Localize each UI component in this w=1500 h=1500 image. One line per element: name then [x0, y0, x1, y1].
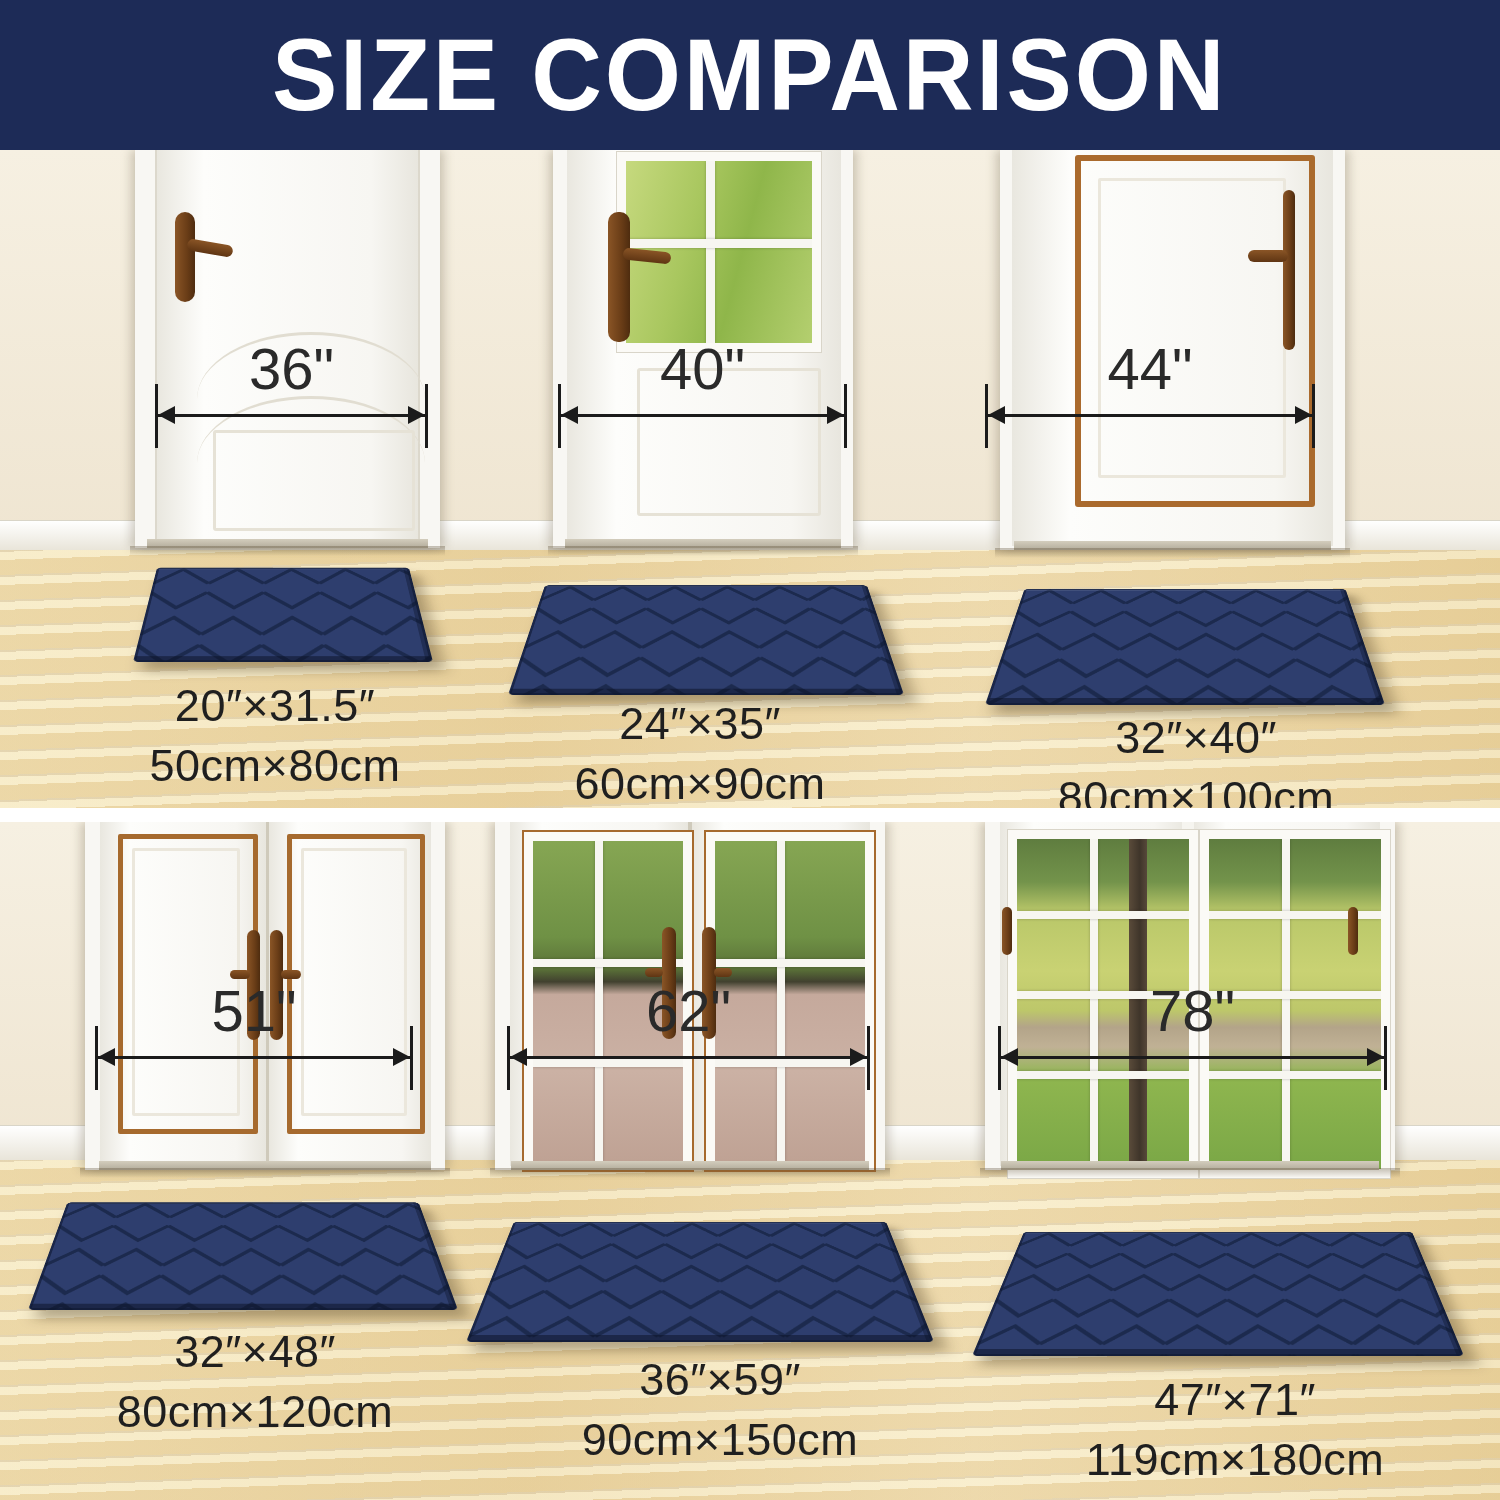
arrowhead-right-icon	[408, 406, 425, 424]
mat-size-label: 24″×35″ 60cm×90cm	[510, 694, 890, 808]
arrowhead-left-icon	[988, 406, 1005, 424]
arrowhead-left-icon	[1001, 1048, 1018, 1066]
dimension-tick	[410, 1026, 413, 1090]
mat-size-cm: 80cm×100cm	[1006, 768, 1386, 808]
window-muntin	[626, 239, 812, 248]
doormat-47x71	[972, 1232, 1464, 1356]
arrowhead-left-icon	[98, 1048, 115, 1066]
door-shadow	[995, 548, 1350, 558]
dimension-tick	[425, 384, 428, 448]
window-muntin	[533, 959, 683, 967]
door-handle-icon	[1002, 907, 1012, 955]
door-panel	[1098, 178, 1286, 478]
window-muntin	[777, 841, 785, 1161]
dimension-line	[1000, 1056, 1385, 1059]
mat-size-label: 20″×31.5″ 50cm×80cm	[85, 676, 465, 797]
doormat-24x35	[508, 585, 904, 695]
size-comparison-infographic: SIZE COMPARISON	[0, 0, 1500, 1500]
door-handle-icon	[1348, 907, 1358, 955]
doormat-20x31	[133, 568, 433, 662]
door-panel	[301, 848, 407, 1116]
arrowhead-right-icon	[393, 1048, 410, 1066]
mat-size-cm: 90cm×150cm	[530, 1410, 910, 1470]
mat-size-cm: 50cm×80cm	[85, 736, 465, 796]
mat-size-inches: 32″×48″	[65, 1322, 445, 1382]
tree-trunk	[1129, 839, 1147, 1169]
mat-size-cm: 80cm×120cm	[65, 1382, 445, 1442]
dimension-tick	[867, 1026, 870, 1090]
door-width-label: 78"	[1150, 977, 1235, 1044]
mat-size-label: 32″×48″ 80cm×120cm	[65, 1322, 445, 1443]
mat-size-inches: 20″×31.5″	[85, 676, 465, 736]
door-shadow	[548, 546, 858, 556]
door-width-label: 51"	[211, 977, 296, 1044]
door-width-label: 44"	[1107, 335, 1192, 402]
double-door-scene: 51" 62" 78"	[0, 822, 1500, 1500]
door-width-label: 40"	[660, 335, 745, 402]
dimension-line	[987, 414, 1313, 417]
arrowhead-left-icon	[561, 406, 578, 424]
door-panel	[213, 430, 415, 531]
door-shadow	[130, 546, 445, 556]
window-muntin	[715, 1059, 865, 1067]
mat-size-label: 47″×71″ 119cm×180cm	[1045, 1370, 1425, 1491]
window-muntin	[1282, 839, 1290, 1169]
single-door-scene: 36" 40" 44"	[0, 150, 1500, 808]
dimension-tick	[844, 384, 847, 448]
door-width-label: 62"	[646, 977, 731, 1044]
door-handle-lever-icon	[645, 968, 663, 977]
arrowhead-right-icon	[1367, 1048, 1384, 1066]
arrowhead-right-icon	[850, 1048, 867, 1066]
section-divider	[0, 808, 1500, 822]
door-shadow	[490, 1168, 890, 1178]
window-muntin	[533, 1059, 683, 1067]
door-edge	[418, 150, 420, 548]
mat-size-label: 36″×59″ 90cm×150cm	[530, 1350, 910, 1471]
window-muntin	[1209, 1071, 1381, 1079]
dimension-line	[560, 414, 845, 417]
window-muntin	[1090, 839, 1098, 1169]
doormat-32x40	[985, 589, 1385, 705]
mat-size-cm: 119cm×180cm	[1045, 1430, 1425, 1490]
window-muntin	[595, 841, 603, 1161]
dimension-line	[157, 414, 426, 417]
title-banner: SIZE COMPARISON	[0, 0, 1500, 150]
door-shadow	[80, 1168, 450, 1178]
door-shadow	[980, 1168, 1400, 1178]
mat-size-cm: 60cm×90cm	[510, 754, 890, 808]
window-muntin	[715, 959, 865, 967]
doormat-32x48	[28, 1202, 458, 1310]
dimension-line	[509, 1056, 868, 1059]
arrowhead-left-icon	[510, 1048, 527, 1066]
door-window	[706, 832, 874, 1170]
door-handle-icon	[608, 212, 630, 342]
door-handle-lever-icon	[1248, 250, 1288, 262]
door-width-label: 36"	[249, 335, 334, 402]
door-handle-lever-icon	[714, 968, 732, 977]
window-muntin	[1017, 1071, 1189, 1079]
mat-size-inches: 47″×71″	[1045, 1370, 1425, 1430]
doormat-36x59	[466, 1222, 934, 1342]
mat-size-inches: 36″×59″	[530, 1350, 910, 1410]
dimension-tick	[1384, 1026, 1387, 1090]
mat-size-label: 32″×40″ 80cm×100cm	[1006, 708, 1386, 808]
dimension-tick	[1312, 384, 1315, 448]
window-muntin	[706, 161, 715, 343]
mat-size-inches: 24″×35″	[510, 694, 890, 754]
arrowhead-right-icon	[1295, 406, 1312, 424]
arrowhead-left-icon	[158, 406, 175, 424]
window-muntin	[1017, 911, 1189, 919]
arrowhead-right-icon	[827, 406, 844, 424]
door-handle-icon	[175, 212, 195, 302]
page-title: SIZE COMPARISON	[272, 17, 1227, 134]
mat-size-inches: 32″×40″	[1006, 708, 1386, 768]
door-handle-icon	[1283, 190, 1295, 350]
door-edge	[155, 150, 157, 548]
dimension-line	[97, 1056, 411, 1059]
